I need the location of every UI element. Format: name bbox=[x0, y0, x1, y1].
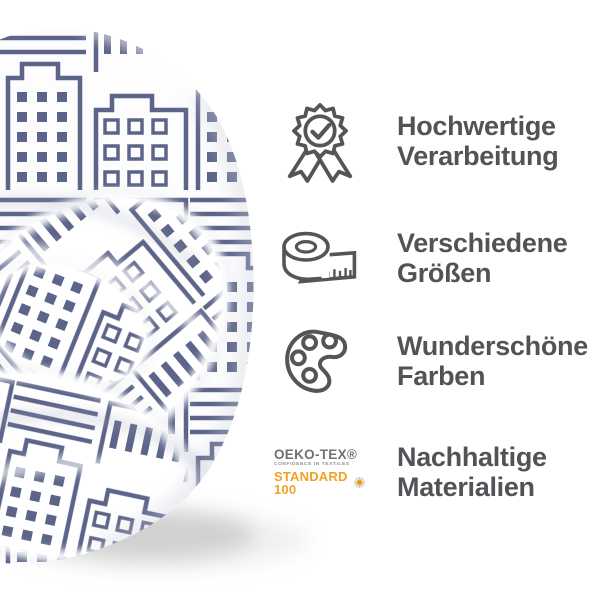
oeko-tex-standard: STANDARD 100 bbox=[274, 470, 350, 496]
feature-materials-label: Nachhaltige Materialien bbox=[397, 442, 547, 502]
feature-line: Farben bbox=[397, 361, 588, 391]
oeko-tex-flower-icon bbox=[353, 474, 366, 491]
feature-quality: Hochwertige Verarbeitung bbox=[277, 93, 558, 189]
feature-line: Verschiedene bbox=[397, 228, 568, 258]
feature-line: Verarbeitung bbox=[397, 141, 558, 171]
feature-sizes: Verschiedene Größen bbox=[277, 212, 568, 304]
paint-palette-icon bbox=[277, 316, 363, 406]
oeko-tex-label: OEKO-TEX® CONFIDENCE IN TEXTILES STANDAR… bbox=[277, 448, 363, 495]
feature-colors: Wunderschöne Farben bbox=[277, 316, 588, 406]
feature-line: Nachhaltige bbox=[397, 442, 547, 472]
feature-line: Wunderschöne bbox=[397, 331, 588, 361]
oeko-tex-tagline: CONFIDENCE IN TEXTILES bbox=[274, 463, 366, 468]
feature-quality-label: Hochwertige Verarbeitung bbox=[397, 111, 558, 171]
feature-sizes-label: Verschiedene Größen bbox=[397, 228, 568, 288]
duvet-fabric bbox=[0, 0, 300, 600]
award-badge-icon bbox=[277, 94, 363, 188]
feature-list: Hochwertige Verarbeitung bbox=[277, 0, 597, 600]
oeko-tex-brand: OEKO-TEX® bbox=[274, 448, 366, 462]
feature-line: Hochwertige bbox=[397, 111, 558, 141]
product-feature-image: Hochwertige Verarbeitung bbox=[0, 0, 600, 600]
feature-materials: OEKO-TEX® CONFIDENCE IN TEXTILES STANDAR… bbox=[277, 426, 547, 518]
measuring-tape-icon bbox=[277, 218, 363, 298]
feature-line: Größen bbox=[397, 258, 568, 288]
feature-line: Materialien bbox=[397, 472, 547, 502]
feature-colors-label: Wunderschöne Farben bbox=[397, 331, 588, 391]
